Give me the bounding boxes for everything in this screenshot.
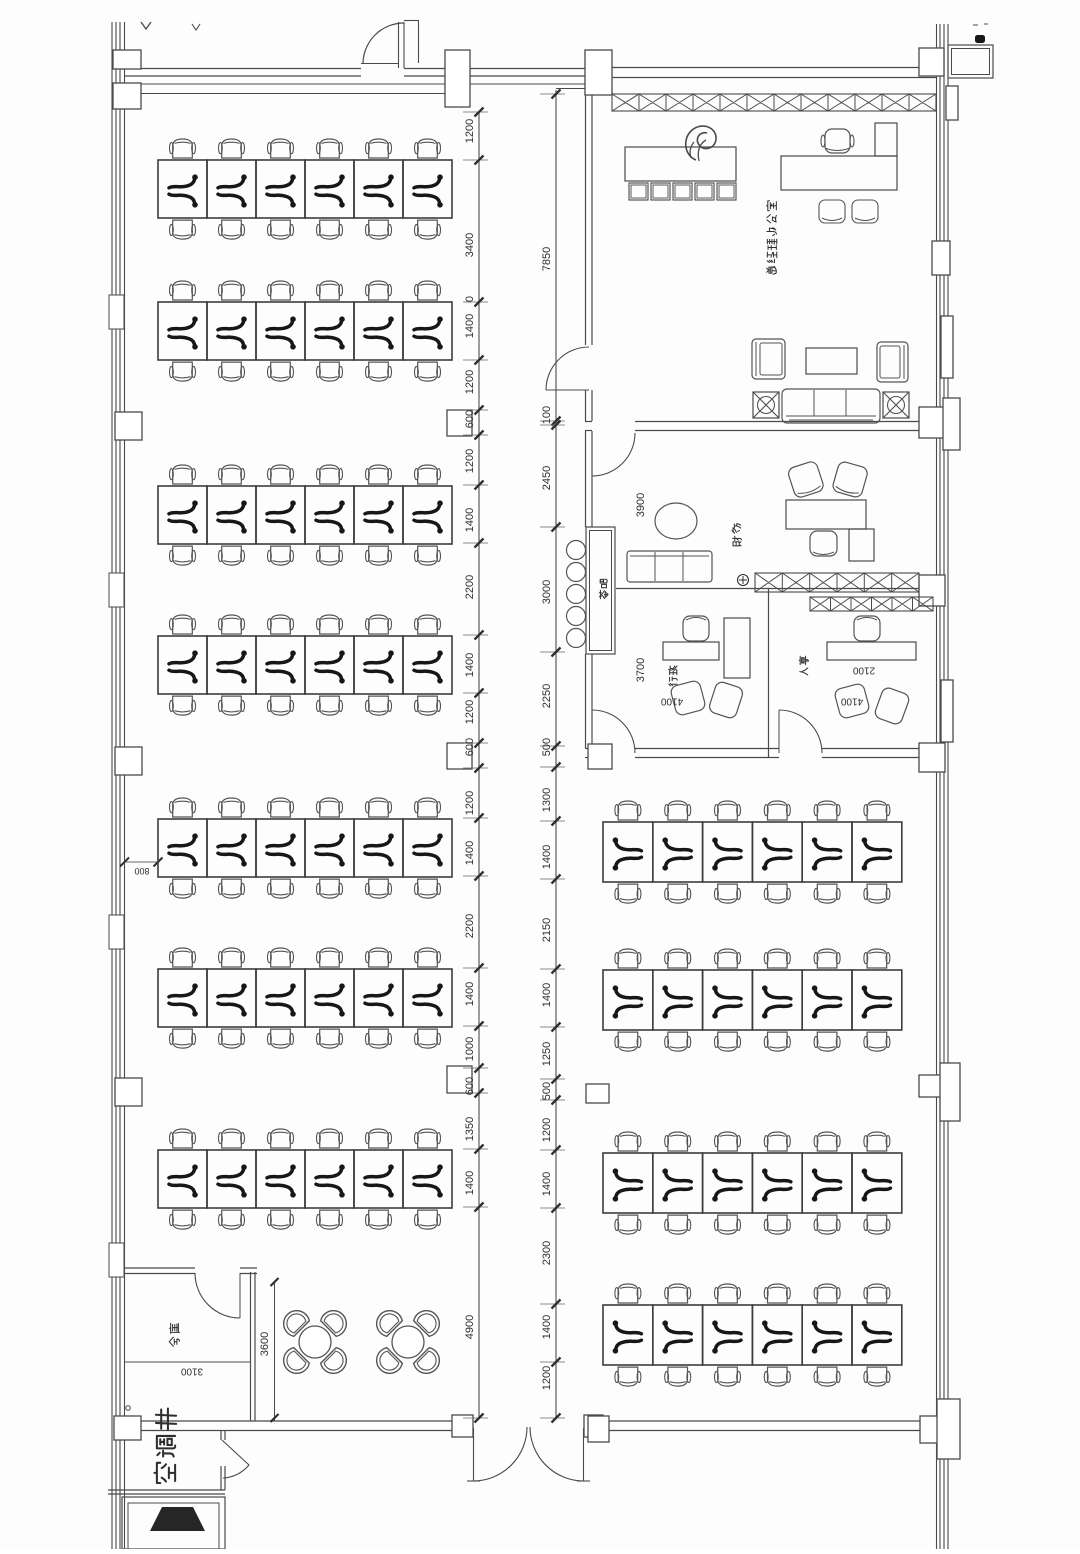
svg-text:1200: 1200 <box>464 370 476 394</box>
svg-text:2100: 2100 <box>852 665 875 676</box>
svg-text:600: 600 <box>464 410 476 428</box>
svg-text:500: 500 <box>541 1082 553 1100</box>
svg-text:1400: 1400 <box>464 841 476 865</box>
svg-text:800: 800 <box>134 866 149 876</box>
svg-text:1200: 1200 <box>464 119 476 143</box>
svg-text:1400: 1400 <box>541 845 553 869</box>
svg-text:3900: 3900 <box>635 493 647 517</box>
svg-text:600: 600 <box>464 738 476 756</box>
svg-text:2200: 2200 <box>464 914 476 938</box>
svg-text:1400: 1400 <box>464 1171 476 1195</box>
svg-text:1200: 1200 <box>541 1366 553 1390</box>
svg-text:4900: 4900 <box>464 1315 476 1339</box>
svg-text:2300: 2300 <box>541 1241 553 1265</box>
svg-text:3600: 3600 <box>259 1332 271 1356</box>
svg-text:1400: 1400 <box>464 982 476 1006</box>
svg-text:1200: 1200 <box>464 449 476 473</box>
svg-text:3000: 3000 <box>541 580 553 604</box>
svg-text:2250: 2250 <box>541 684 553 708</box>
svg-text:1400: 1400 <box>464 508 476 532</box>
svg-text:1350: 1350 <box>464 1117 476 1141</box>
svg-text:1400: 1400 <box>541 1172 553 1196</box>
svg-text:3700: 3700 <box>635 658 647 682</box>
svg-text:1400: 1400 <box>464 653 476 677</box>
svg-text:2200: 2200 <box>464 575 476 599</box>
svg-text:1000: 1000 <box>464 1037 476 1061</box>
svg-text:3100: 3100 <box>180 1366 203 1377</box>
svg-text:1200: 1200 <box>464 700 476 724</box>
svg-text:1250: 1250 <box>541 1042 553 1066</box>
svg-text:4100: 4100 <box>840 696 863 707</box>
svg-text:2150: 2150 <box>541 918 553 942</box>
svg-text:1400: 1400 <box>464 314 476 338</box>
svg-text:1400: 1400 <box>541 983 553 1007</box>
svg-text:100: 100 <box>541 406 553 424</box>
svg-text:3400: 3400 <box>464 233 476 257</box>
svg-text:600: 600 <box>464 1077 476 1095</box>
svg-text:7850: 7850 <box>541 247 553 271</box>
svg-text:1400: 1400 <box>541 1315 553 1339</box>
svg-text:1300: 1300 <box>541 788 553 812</box>
svg-text:0: 0 <box>464 296 476 302</box>
svg-text:1200: 1200 <box>541 1118 553 1142</box>
svg-text:2450: 2450 <box>541 466 553 490</box>
svg-text:1200: 1200 <box>464 791 476 815</box>
svg-text:4100: 4100 <box>660 696 683 707</box>
svg-text:500: 500 <box>541 738 553 756</box>
